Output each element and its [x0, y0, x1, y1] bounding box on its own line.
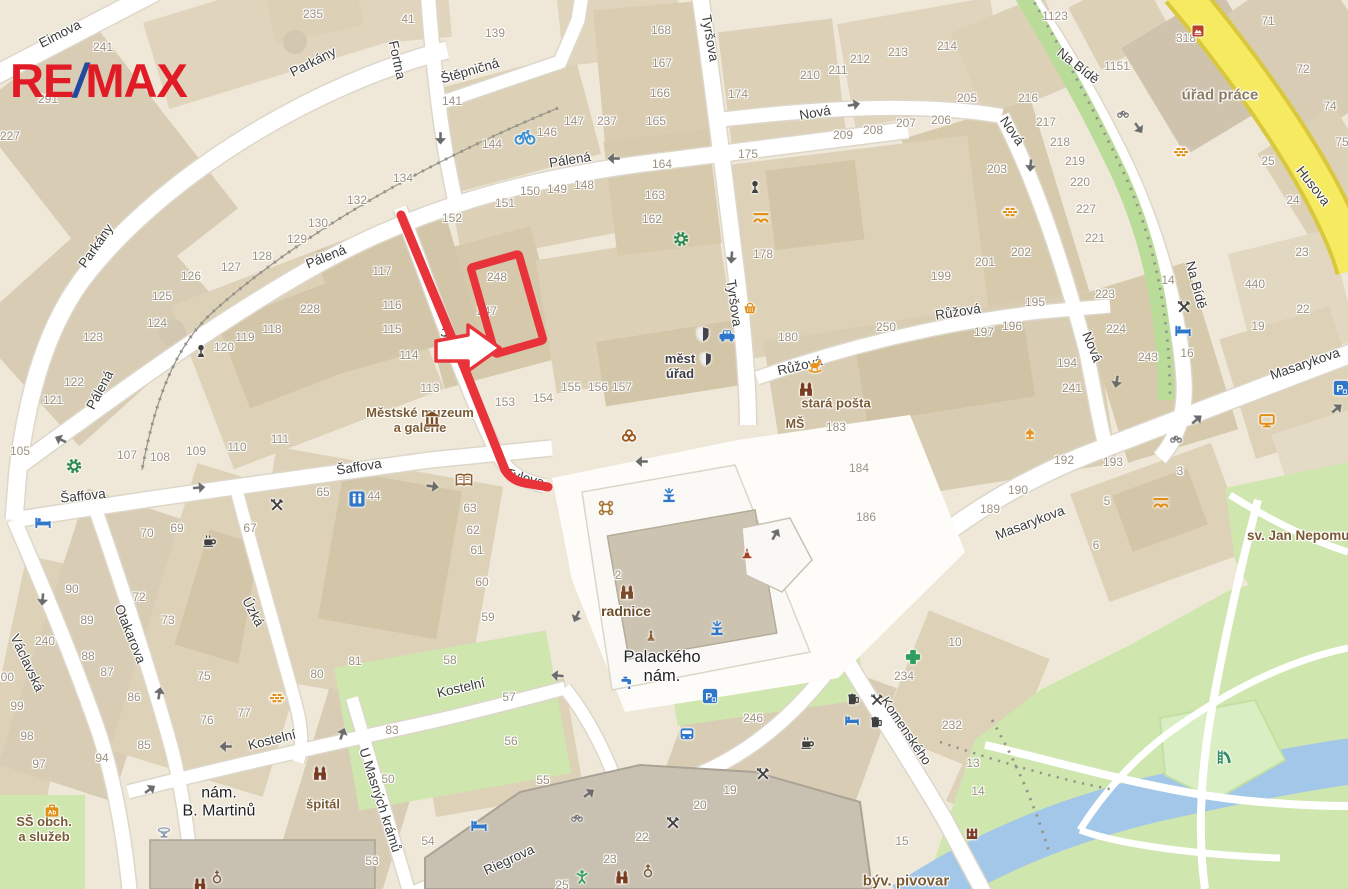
remax-logo-slash: / — [73, 54, 85, 107]
highlight-overlay — [0, 0, 1348, 889]
remax-logo-max: MAX — [85, 54, 186, 107]
remax-logo: RE/MAX — [10, 53, 187, 108]
remax-logo-re: RE — [10, 54, 73, 107]
map-canvas[interactable]: P — [0, 0, 1348, 889]
